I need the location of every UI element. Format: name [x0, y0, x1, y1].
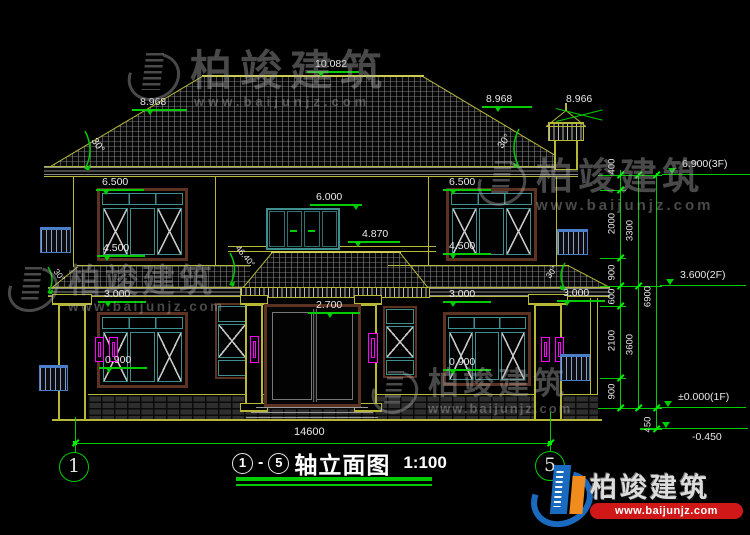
angle-arc-porch-right	[556, 262, 567, 290]
dim-eave-right: 8.968	[486, 93, 512, 105]
dim-w2-sill-right: 4.500	[449, 240, 475, 252]
chain-400: 400	[607, 147, 618, 187]
dim-door2-head: 6.000	[316, 191, 342, 203]
chain-6900: 6900	[643, 277, 654, 317]
balcony-door-2f	[266, 208, 340, 250]
title-dash: -	[258, 454, 263, 472]
chain-3300: 3300	[625, 211, 636, 251]
wall-2f-mid-left	[215, 177, 216, 267]
logo-brand-text: 柏竣建筑	[590, 466, 710, 505]
title-axis-start: 1	[232, 453, 253, 474]
window-1f-narrow-right	[383, 306, 417, 378]
dim-porch-far-right: 3.000	[563, 287, 589, 299]
balcony-railing-1f-right	[560, 354, 590, 381]
wall-2f-mid-right	[428, 177, 429, 267]
dim-porch-left: 3.000	[104, 288, 130, 300]
level-base: -0.450	[640, 421, 748, 443]
angle-arc-main-right	[508, 128, 522, 168]
balcony-railing-2f-right	[557, 229, 588, 255]
dim-total-width: 14600	[294, 426, 325, 438]
porch-roof-center	[243, 252, 428, 287]
dim-door-head: 2.700	[316, 299, 342, 311]
overall-dim-line	[76, 443, 551, 444]
column-cap-left	[52, 294, 92, 305]
dim-chimney: 8.966	[566, 93, 592, 105]
dim-w2-head-right: 6.500	[449, 176, 475, 188]
dim-w2-sill-left: 4.500	[103, 242, 129, 254]
dim-eave-left: 8.968	[140, 96, 166, 108]
entry-door	[264, 304, 361, 407]
balcony-railing-2f-left	[40, 227, 71, 253]
logo-url-band: www.baijunjz.com	[590, 503, 743, 519]
balcony-railing-1f-left	[39, 365, 68, 391]
window-1f-narrow-left	[215, 303, 249, 379]
dim-porch-top: 4.870	[362, 228, 388, 240]
chain-2100: 2100	[607, 321, 618, 361]
pilaster-decor-right	[368, 333, 378, 363]
chain-900b: 900	[607, 372, 618, 412]
ground-line	[52, 419, 602, 421]
grid-line-5	[550, 412, 551, 451]
chain-600: 600	[607, 277, 618, 317]
dim-w1-sill-left: 0.900	[105, 354, 131, 366]
dim-w1-sill-right: 0.900	[449, 356, 475, 368]
column-right	[534, 305, 562, 420]
drawing-title: 1 - 5 轴立面图 1:100	[232, 446, 447, 480]
title-axis-end: 5	[268, 453, 289, 474]
chain-3600: 3600	[625, 325, 636, 365]
title-underline-thin	[236, 484, 432, 486]
dim-w2-head-left: 6.500	[102, 176, 128, 188]
title-scale: 1:100	[403, 453, 446, 473]
porch-roof-left	[52, 266, 250, 287]
pilaster-decor-left	[250, 336, 259, 363]
level-1f: ±0.000(1F)	[658, 391, 746, 403]
entry-lintel-hatch	[240, 287, 430, 298]
dim-porch-right: 3.000	[449, 288, 475, 300]
level-2f: 3.600(2F)	[660, 269, 746, 281]
roof-ridge-line	[202, 75, 424, 77]
wall-2f-left	[73, 177, 74, 267]
dim-ridge: 10.082	[315, 58, 347, 70]
brick-wainscot-right	[562, 394, 598, 419]
title-name: 轴立面图	[294, 446, 390, 480]
grid-bubble-1: 1	[59, 452, 89, 482]
level-3f: 6.900(3F)	[662, 158, 750, 170]
main-roof-tiles	[48, 76, 575, 168]
column-left	[58, 305, 86, 420]
company-logo: 柏竣建筑 www.baijunjz.com	[528, 462, 750, 534]
chain-2000: 2000	[607, 204, 618, 244]
elevation-drawing: 30° 30° 30° 30° 46.40° 10.082 8.968 8.96…	[0, 0, 750, 535]
grid-line-1	[75, 417, 76, 452]
chimney-louver	[548, 122, 584, 141]
angle-arc-center	[228, 252, 240, 286]
